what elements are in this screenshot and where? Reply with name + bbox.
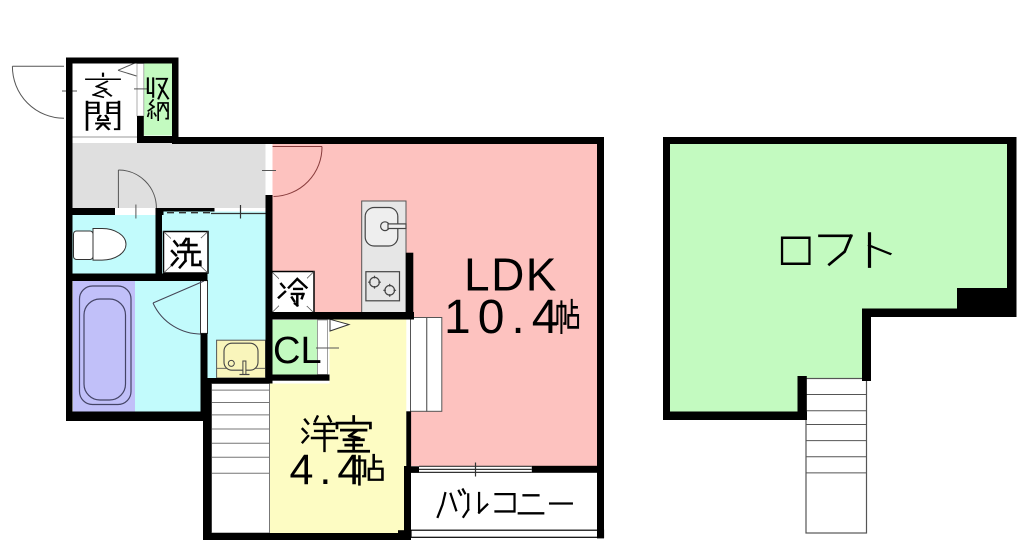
- svg-text:CL: CL: [273, 330, 322, 372]
- svg-text:4.4: 4.4: [290, 446, 368, 494]
- svg-text:10.4: 10.4: [444, 291, 565, 344]
